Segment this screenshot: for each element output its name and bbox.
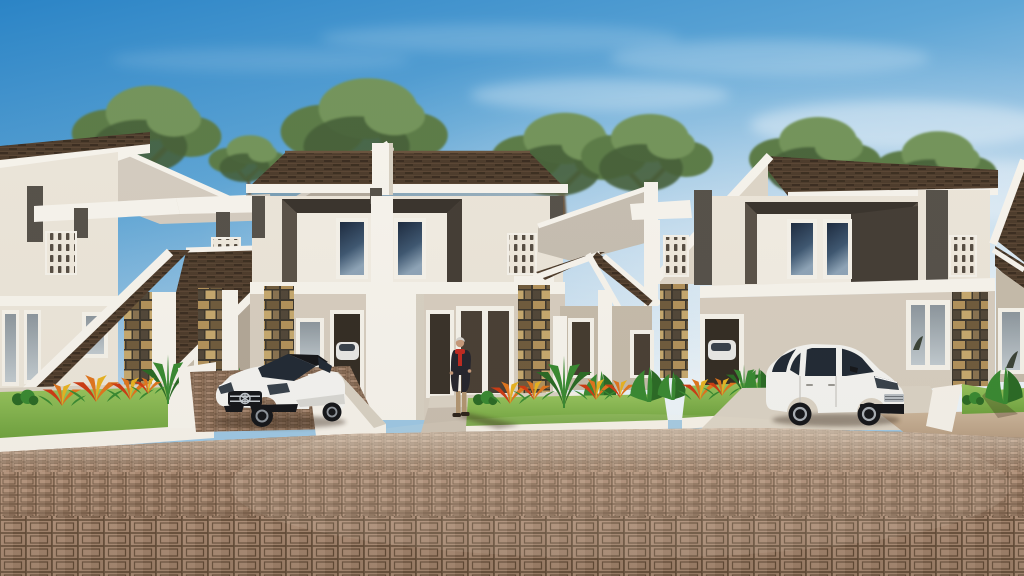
global-vignette (0, 0, 1024, 576)
render-canvas: Modern two-storey housing estate - 3D ex… (0, 0, 1024, 576)
